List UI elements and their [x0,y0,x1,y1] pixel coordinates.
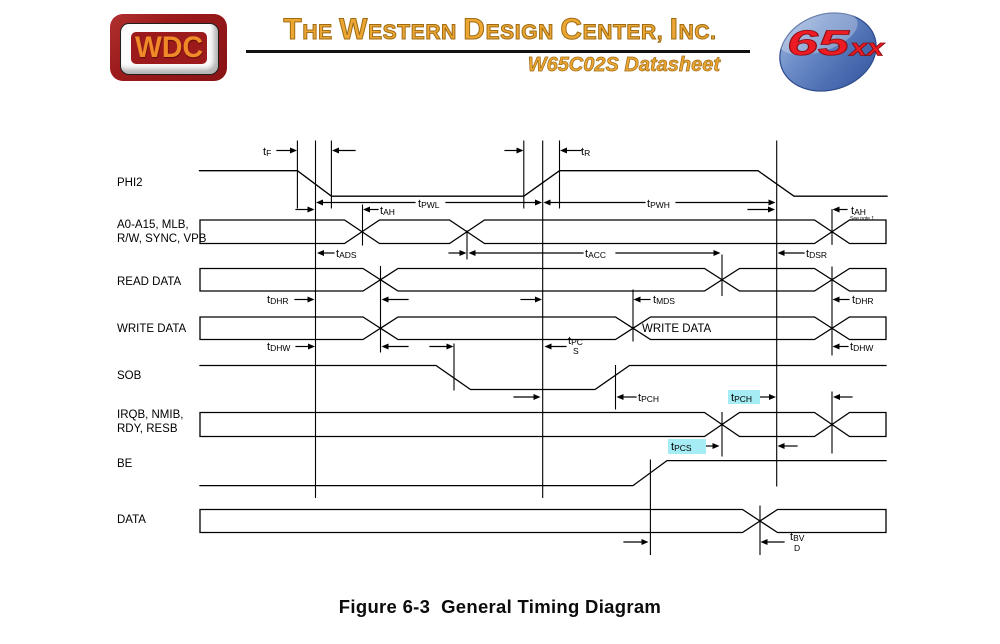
svg-text:PHI2: PHI2 [117,177,143,189]
svg-text:tAH: tAH [380,205,395,217]
svg-text:SOB: SOB [117,370,142,382]
svg-text:BE: BE [117,458,133,470]
svg-text:tACC: tACC [585,248,606,260]
svg-text:tDSR: tDSR [806,248,827,260]
svg-text:R/W, SYNC, VPB: R/W, SYNC, VPB [117,233,207,245]
svg-text:tPCS: tPCS [671,441,692,453]
svg-text:WRITE DATA: WRITE DATA [642,323,712,335]
svg-text:tR: tR [581,146,590,158]
svg-text:IRQB, NMIB,: IRQB, NMIB, [117,409,183,421]
svg-text:WRITE DATA: WRITE DATA [117,323,187,335]
svg-text:tPWH: tPWH [647,198,670,210]
svg-text:tDHR: tDHR [267,294,288,306]
svg-text:tPCH: tPCH [638,392,659,404]
svg-text:tPWL: tPWL [418,198,440,210]
svg-text:READ DATA: READ DATA [117,276,181,288]
svg-text:D: D [794,543,800,553]
svg-text:DATA: DATA [117,514,146,526]
svg-text:tBV: tBV [790,531,805,543]
svg-text:A0-A15, MLB,: A0-A15, MLB, [117,219,189,231]
svg-text:See note 1: See note 1 [850,216,874,222]
svg-text:S: S [573,346,579,356]
svg-text:tDHW: tDHW [267,341,290,353]
svg-text:tPCH: tPCH [731,392,752,404]
svg-text:tADS: tADS [336,248,357,260]
svg-text:tDHW: tDHW [850,341,873,353]
svg-text:tF: tF [263,146,271,158]
svg-text:tMDS: tMDS [653,294,675,306]
svg-text:tDHR: tDHR [852,294,873,306]
svg-text:RDY, RESB: RDY, RESB [117,423,178,435]
